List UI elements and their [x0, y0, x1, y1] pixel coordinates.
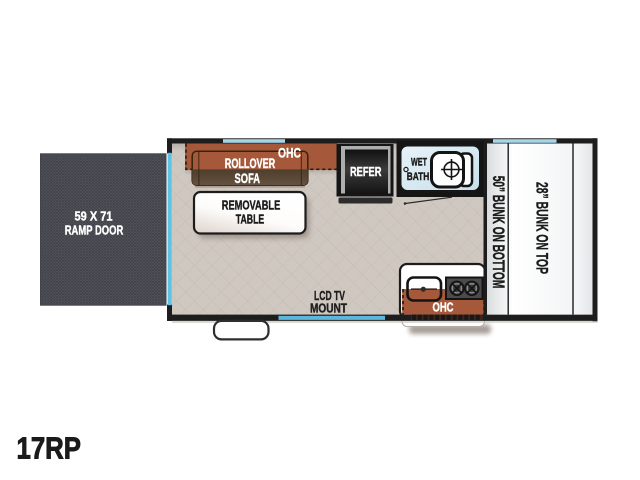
- svg-text:RAMP DOOR: RAMP DOOR: [65, 223, 124, 238]
- svg-text:SOFA: SOFA: [235, 170, 261, 186]
- svg-text:OHC: OHC: [278, 144, 301, 160]
- svg-text:17RP: 17RP: [17, 432, 82, 466]
- svg-text:59 X 71: 59 X 71: [75, 208, 113, 223]
- svg-text:OHC: OHC: [433, 300, 454, 314]
- svg-text:MOUNT: MOUNT: [310, 301, 347, 315]
- svg-text:28” BUNK ON TOP: 28” BUNK ON TOP: [533, 182, 552, 274]
- svg-text:ROLLOVER: ROLLOVER: [225, 156, 276, 171]
- svg-text:50” BUNK ON BOTTOM: 50” BUNK ON BOTTOM: [489, 176, 508, 289]
- svg-text:WET: WET: [411, 156, 427, 168]
- svg-text:REMOVABLE: REMOVABLE: [222, 199, 281, 213]
- svg-text:BATH: BATH: [407, 171, 430, 183]
- svg-text:TABLE: TABLE: [236, 213, 265, 227]
- svg-text:REFER: REFER: [350, 165, 382, 179]
